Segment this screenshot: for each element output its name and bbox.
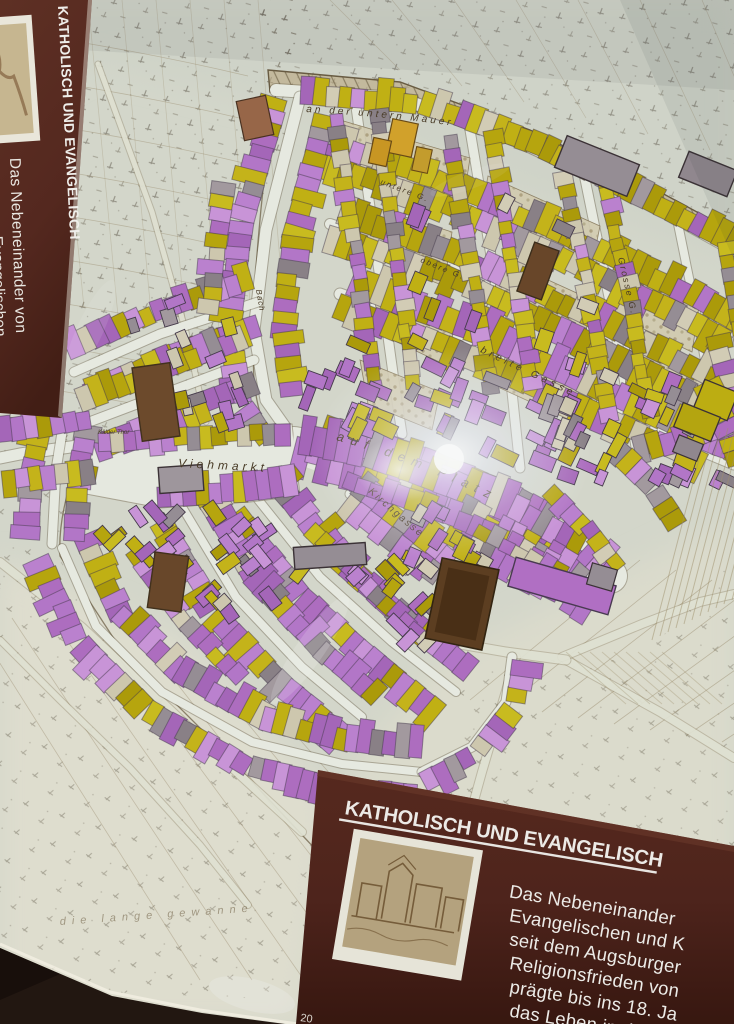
svg-text:20: 20 (300, 1012, 314, 1024)
